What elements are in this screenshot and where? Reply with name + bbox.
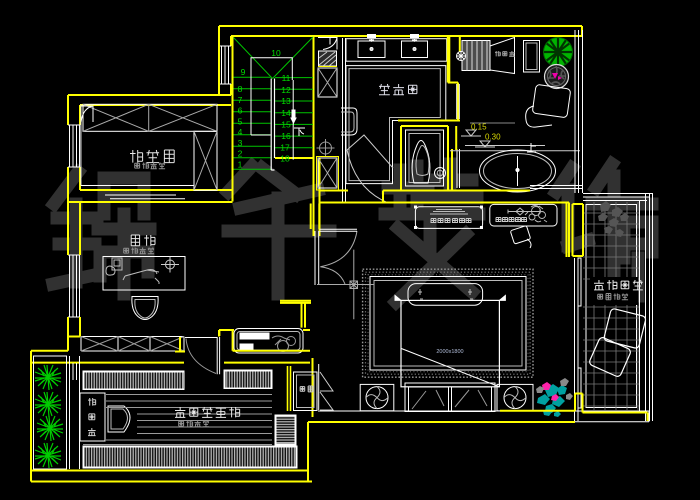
- svg-text:9: 9: [241, 67, 246, 77]
- svg-text:11: 11: [282, 73, 291, 83]
- svg-text:2: 2: [238, 149, 243, 159]
- svg-text:5: 5: [238, 116, 243, 126]
- svg-text:12: 12: [281, 85, 291, 95]
- svg-text:15: 15: [281, 120, 291, 130]
- svg-text:16: 16: [281, 131, 291, 141]
- svg-text:1: 1: [238, 159, 243, 169]
- svg-text:3: 3: [238, 138, 243, 148]
- svg-text:2000x1800: 2000x1800: [436, 349, 463, 355]
- svg-text:6: 6: [238, 106, 243, 116]
- svg-text:14: 14: [281, 108, 291, 118]
- svg-text:4: 4: [238, 127, 243, 137]
- svg-text:17: 17: [280, 143, 290, 153]
- svg-text:0.30: 0.30: [485, 133, 501, 142]
- svg-text:10: 10: [271, 48, 281, 58]
- svg-text:13: 13: [281, 96, 291, 106]
- svg-text:7: 7: [238, 95, 243, 105]
- svg-text:8: 8: [238, 84, 243, 94]
- svg-text:18: 18: [280, 154, 290, 164]
